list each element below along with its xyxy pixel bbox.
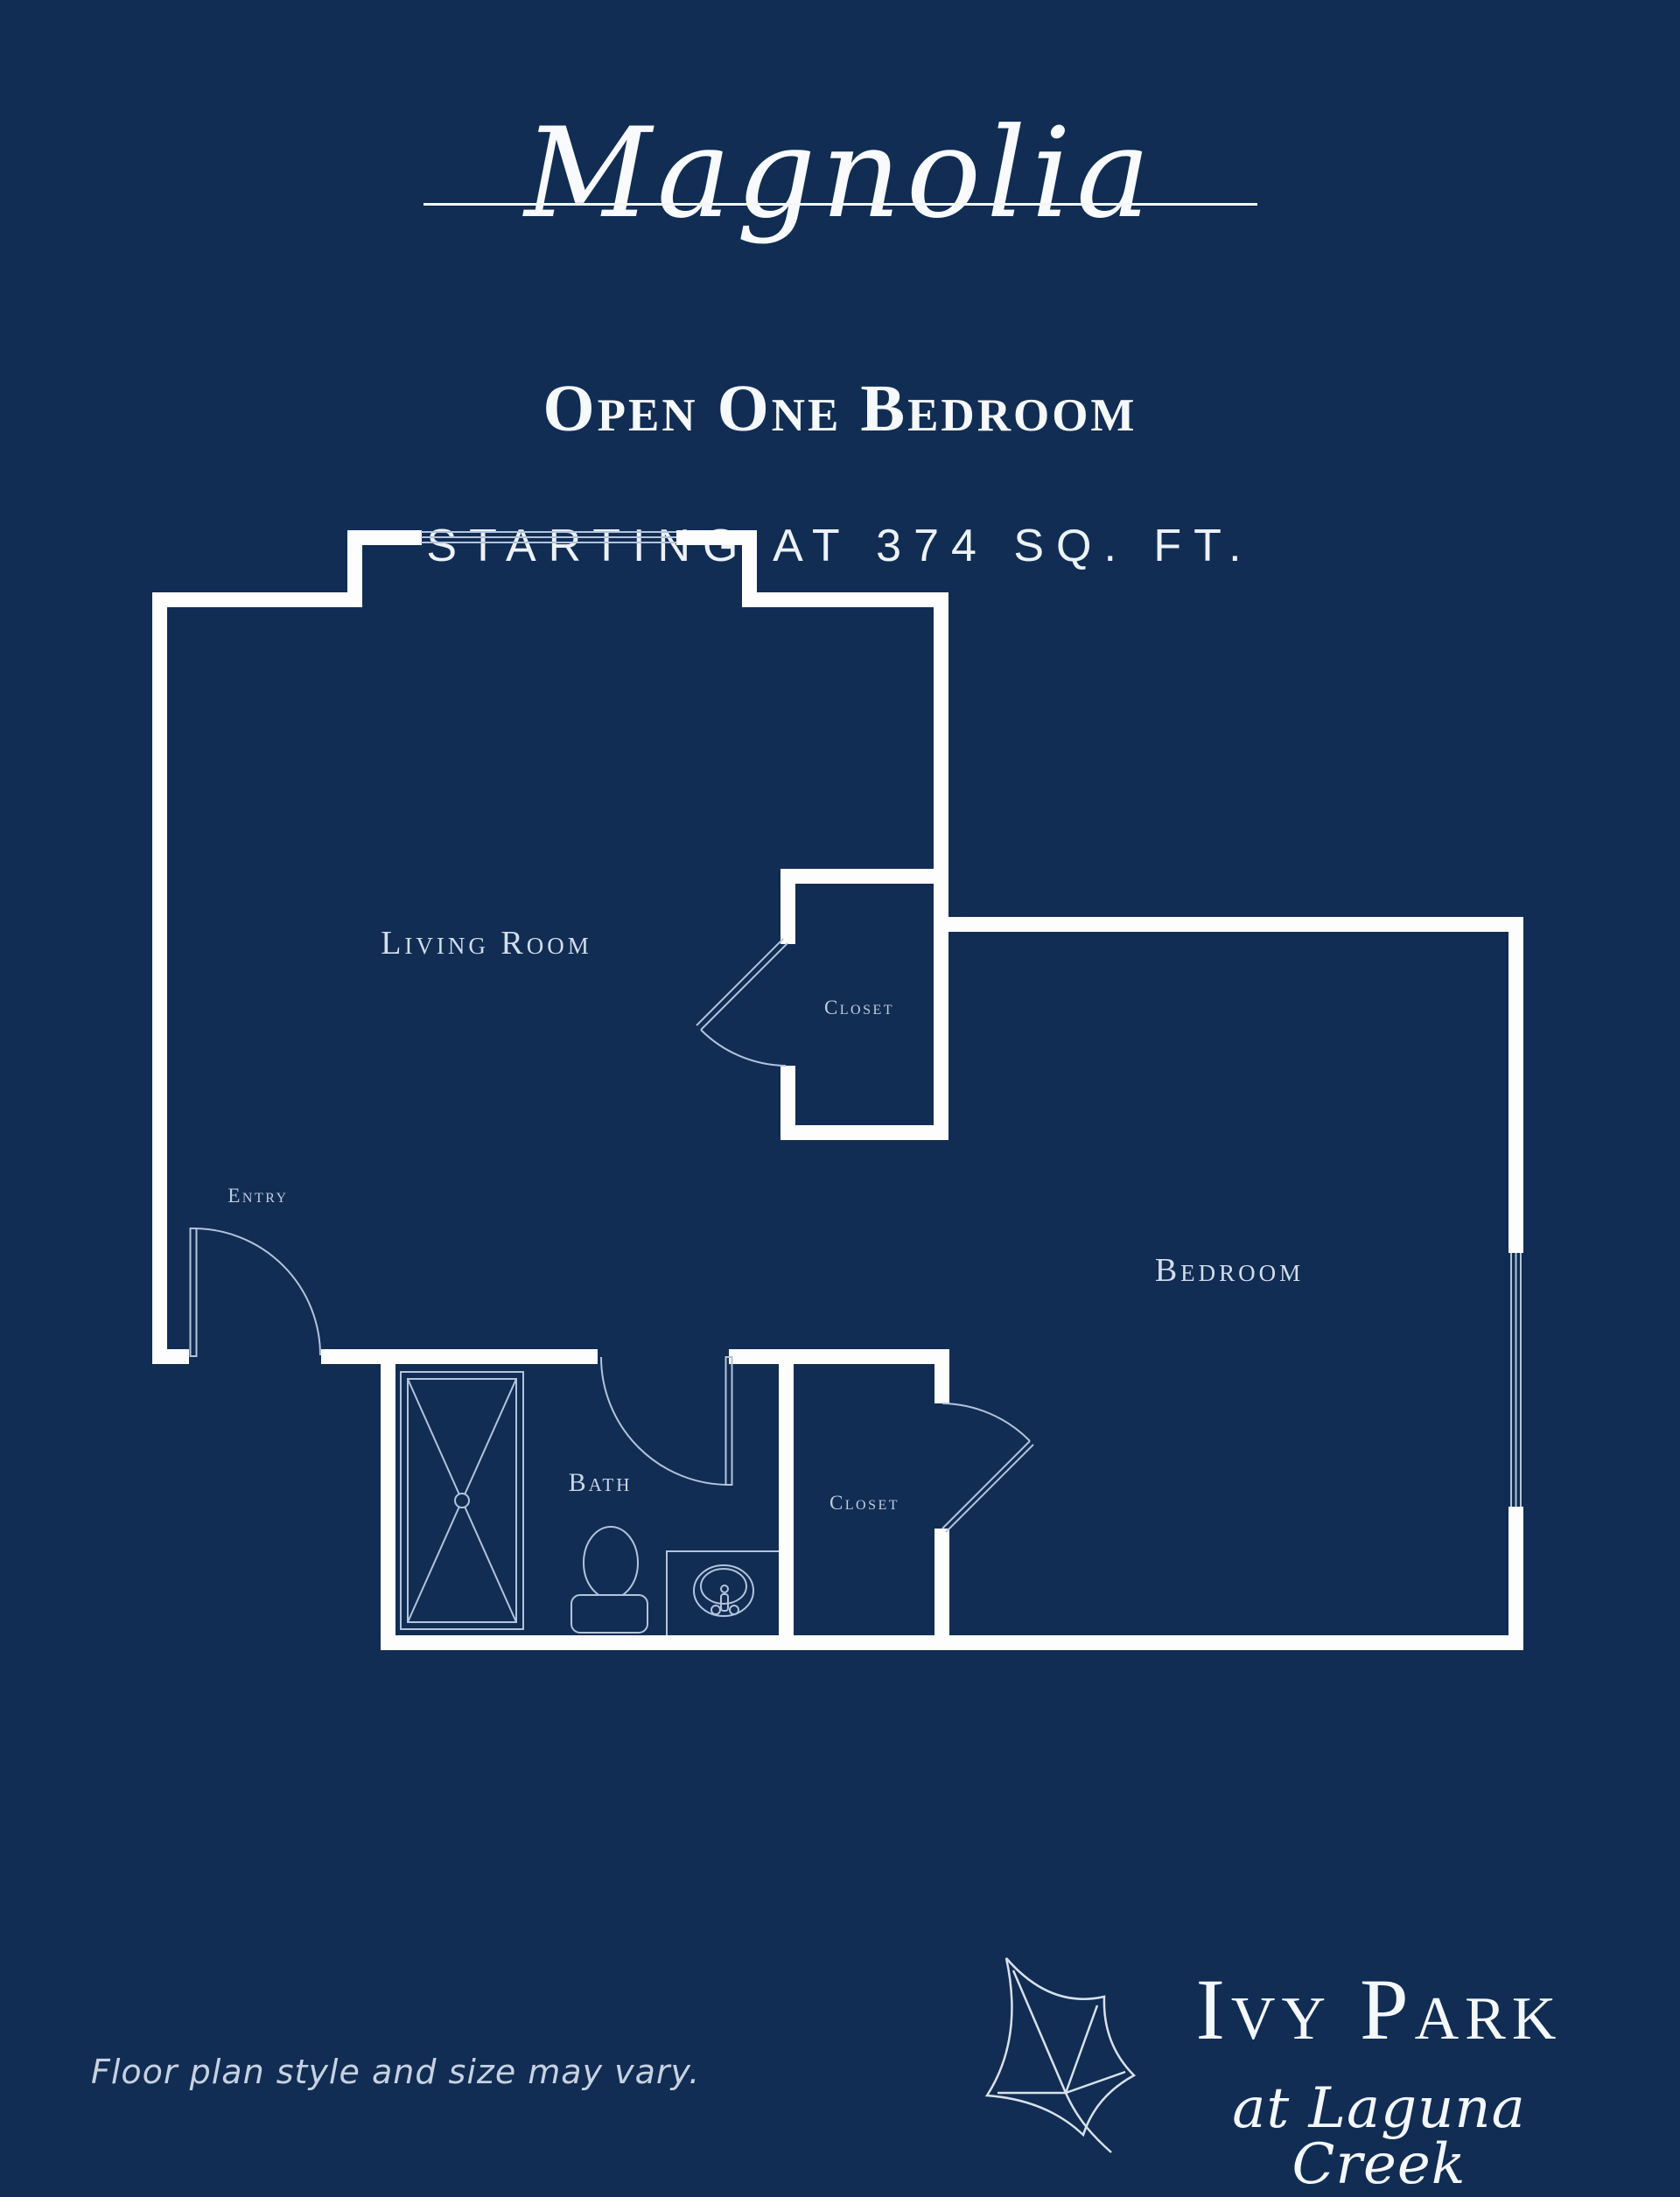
walls xyxy=(152,530,1523,1650)
bedroom-window xyxy=(1511,1253,1521,1507)
living-room-label: Living Room xyxy=(381,925,592,962)
sink-vanity xyxy=(667,1551,779,1635)
entry-label: Entry xyxy=(227,1185,288,1207)
bath-label: Bath xyxy=(569,1468,633,1497)
closet-lower-label: Closet xyxy=(829,1492,899,1514)
brand-name: Ivy Park xyxy=(1160,1966,1598,2054)
closet-upper-door xyxy=(696,939,787,1066)
living-room-window xyxy=(421,532,676,542)
toilet xyxy=(571,1527,647,1633)
ivy-leaf-icon xyxy=(987,1958,1134,2152)
floor-plan: Living Room Closet Entry Bath Closet Bed… xyxy=(0,0,1680,2174)
entry-door xyxy=(191,1228,321,1356)
shower xyxy=(401,1372,523,1629)
bedroom-label: Bedroom xyxy=(1155,1252,1304,1289)
bath-door xyxy=(601,1357,732,1485)
closet-lower-door xyxy=(942,1403,1033,1532)
closet-upper-label: Closet xyxy=(824,997,894,1018)
brand-location: at Laguna Creek xyxy=(1160,2081,1598,2193)
disclaimer-text: Floor plan style and size may vary. xyxy=(91,2053,700,2091)
